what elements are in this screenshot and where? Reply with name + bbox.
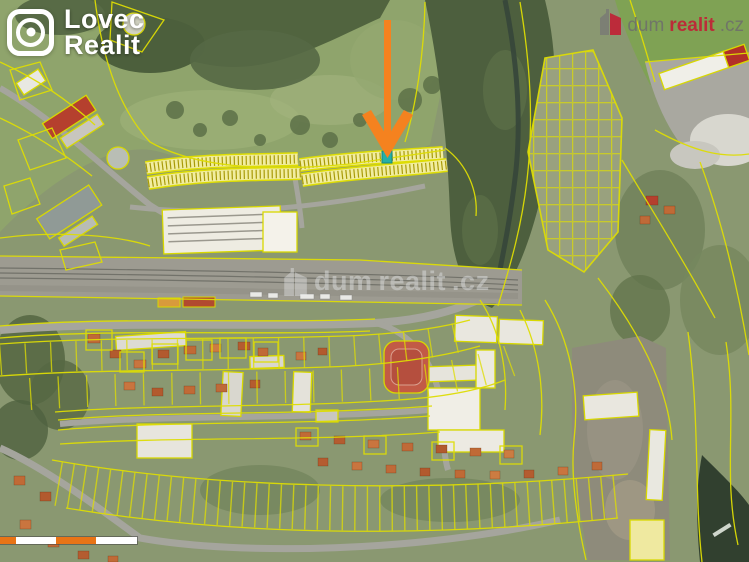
- round-tank: [107, 147, 129, 169]
- map-scalebar: [0, 537, 137, 544]
- dum-text: dum: [627, 16, 664, 35]
- scalebar-segment: [0, 537, 16, 544]
- scalebar-segment: [56, 537, 96, 544]
- logo-line2: Realit: [64, 32, 145, 58]
- lovec-realit-wordmark: Lovec Realit: [64, 6, 145, 58]
- aerial-map: [0, 0, 749, 562]
- house-icon: [598, 9, 622, 35]
- scalebar-segment: [96, 537, 137, 544]
- scalebar-segment: [16, 537, 56, 544]
- target-scope-icon: [7, 9, 54, 56]
- logo-line1: Lovec: [64, 6, 145, 32]
- listing-map-image[interactable]: Lovec Realit dumrealit.cz dumrealit.cz: [0, 0, 749, 562]
- dumrealit-logo: dumrealit.cz: [598, 9, 744, 35]
- lovec-realit-logo: Lovec Realit: [7, 6, 145, 58]
- realit-text: realit: [669, 16, 714, 35]
- sports-track: [384, 341, 429, 393]
- cz-text: .cz: [720, 16, 744, 35]
